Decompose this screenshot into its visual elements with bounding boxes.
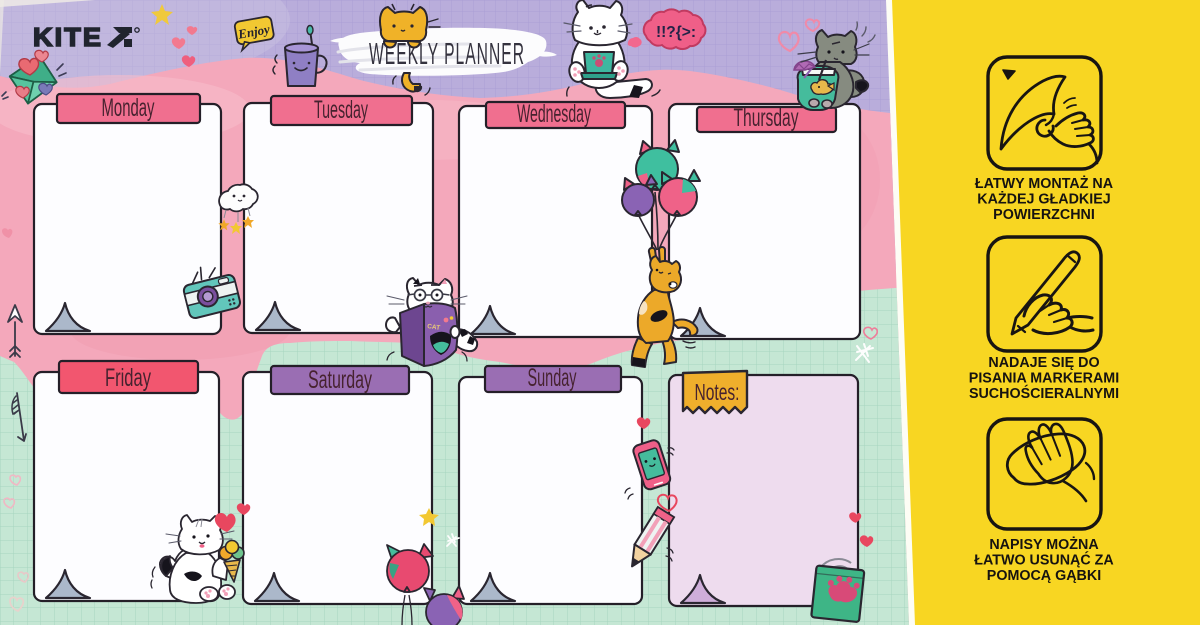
svg-text:Sunday: Sunday	[528, 364, 577, 392]
svg-text:ŁATWY MONTAŻ NA: ŁATWY MONTAŻ NA	[975, 175, 1113, 192]
svg-text:PISANIA MARKERAMI: PISANIA MARKERAMI	[969, 371, 1119, 387]
svg-text:Thursday: Thursday	[734, 104, 799, 132]
svg-text:POWIERZCHNI: POWIERZCHNI	[993, 207, 1095, 223]
svg-text:Monday: Monday	[102, 94, 155, 122]
svg-text:!!?{>:: !!?{>:	[656, 24, 696, 41]
svg-text:Friday: Friday	[105, 364, 151, 392]
svg-text:NADAJE SIĘ DO: NADAJE SIĘ DO	[988, 355, 1099, 371]
svg-text:POMOCĄ GĄBKI: POMOCĄ GĄBKI	[987, 568, 1101, 584]
svg-text:Saturday: Saturday	[308, 366, 372, 394]
svg-text:NAPISY MOŻNA: NAPISY MOŻNA	[989, 536, 1098, 553]
svg-text:Notes:: Notes:	[695, 379, 740, 405]
svg-text:Wednesday: Wednesday	[517, 100, 591, 128]
svg-text:KITE: KITE	[33, 22, 103, 52]
svg-text:ŁATWO USUNĄĆ ZA: ŁATWO USUNĄĆ ZA	[974, 551, 1114, 569]
svg-text:SUCHOŚCIERALNYMI: SUCHOŚCIERALNYMI	[969, 384, 1119, 402]
svg-text:Tuesday: Tuesday	[314, 96, 368, 124]
svg-text:KAŻDEJ GŁADKIEJ: KAŻDEJ GŁADKIEJ	[977, 191, 1110, 208]
